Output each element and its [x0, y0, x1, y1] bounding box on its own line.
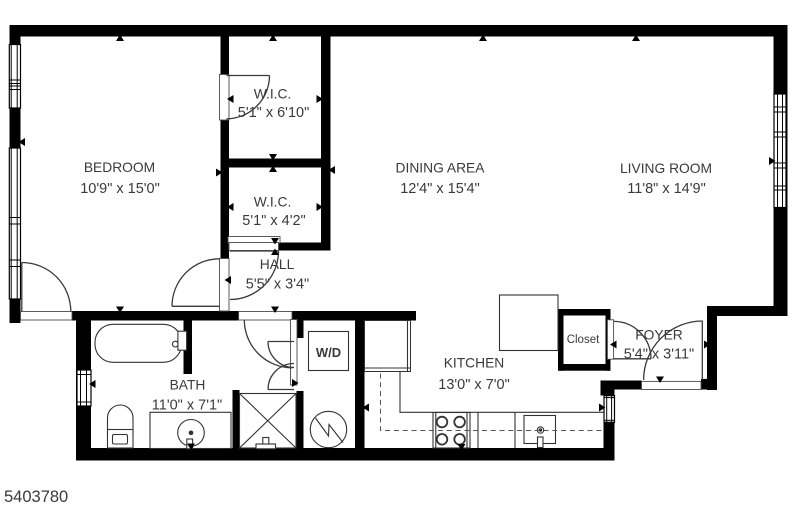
svg-text:FOYER: FOYER — [635, 327, 683, 342]
svg-text:DINING AREA: DINING AREA — [396, 161, 486, 176]
svg-text:BEDROOM: BEDROOM — [84, 160, 155, 175]
svg-text:5403780: 5403780 — [4, 488, 68, 506]
svg-text:13'0" x 7'0": 13'0" x 7'0" — [438, 377, 509, 393]
svg-text:W.I.C.: W.I.C. — [254, 195, 292, 210]
svg-text:11'8" x 14'9": 11'8" x 14'9" — [627, 181, 705, 197]
svg-text:KITCHEN: KITCHEN — [444, 356, 505, 371]
svg-text:W/D: W/D — [316, 345, 341, 360]
svg-text:5'1" x 6'10": 5'1" x 6'10" — [238, 105, 309, 121]
svg-text:Closet: Closet — [567, 334, 600, 346]
svg-text:5'1" x 4'2": 5'1" x 4'2" — [242, 213, 305, 229]
svg-text:LIVING ROOM: LIVING ROOM — [620, 161, 712, 176]
svg-text:5'4" x 3'11": 5'4" x 3'11" — [624, 347, 694, 363]
svg-text:11'0" x 7'1": 11'0" x 7'1" — [152, 398, 222, 414]
svg-text:HALL: HALL — [260, 257, 295, 272]
svg-text:BATH: BATH — [170, 378, 206, 393]
svg-text:5'5" x 3'4": 5'5" x 3'4" — [246, 277, 309, 293]
svg-text:12'4" x 15'4": 12'4" x 15'4" — [400, 181, 480, 197]
svg-text:10'9" x 15'0": 10'9" x 15'0" — [80, 181, 160, 197]
svg-text:W.I.C.: W.I.C. — [254, 87, 292, 102]
